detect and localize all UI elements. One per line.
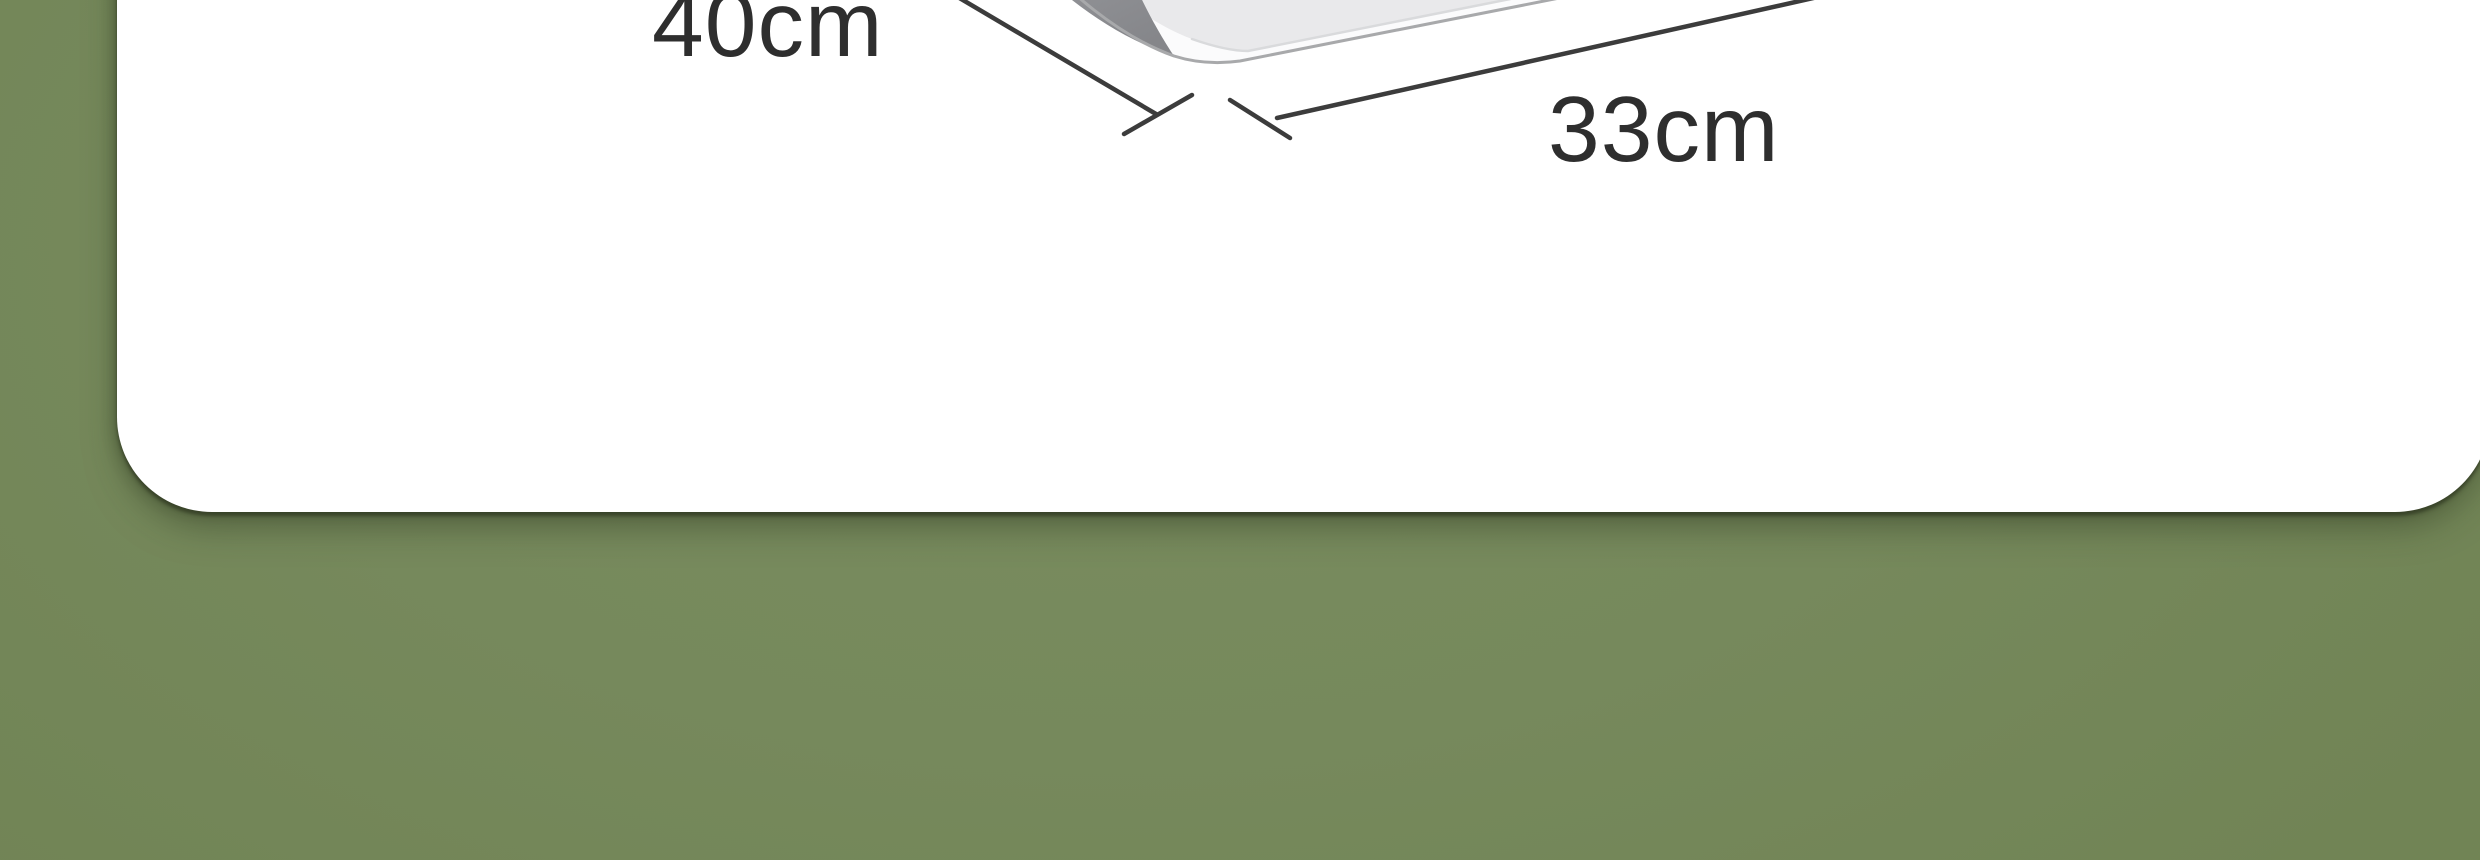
dim-label-40cm: 40cm: [652, 0, 883, 78]
product-illustration: [0, 0, 2480, 860]
dimension-diagram: 40cm 33cm: [0, 0, 2480, 860]
dim-label-33cm: 33cm: [1548, 76, 1779, 183]
